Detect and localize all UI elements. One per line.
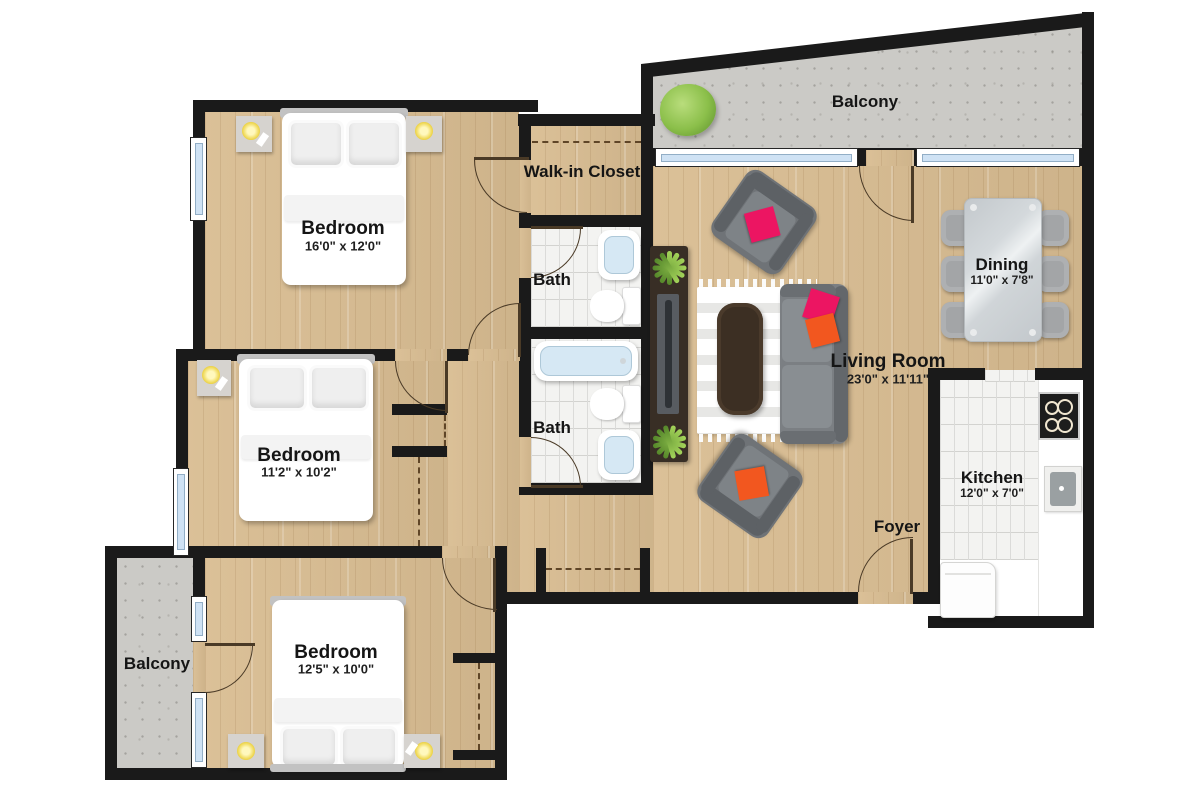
stove-burner bbox=[1057, 417, 1073, 433]
wall-kitchen-north-right bbox=[1035, 368, 1094, 380]
closet-rod-walk-in bbox=[532, 141, 641, 143]
room-label-dining: Dining bbox=[976, 255, 1029, 275]
table-corner-dot bbox=[970, 204, 977, 211]
kitchen-entry-tile bbox=[985, 370, 1035, 382]
room-dims-living-room: 23'0" x 11'11" bbox=[847, 373, 929, 388]
coffee-table bbox=[717, 303, 763, 415]
bathtub-faucet bbox=[620, 358, 626, 364]
room-label-foyer: Foyer bbox=[874, 517, 920, 537]
lamp bbox=[242, 122, 260, 140]
sofa-armrest bbox=[780, 431, 836, 444]
door-gap-balcony-top bbox=[866, 150, 914, 166]
bathtub bbox=[534, 341, 638, 381]
room-dims-dining: 11'0" x 7'8" bbox=[970, 274, 1033, 288]
door-gap-balcony-bottom bbox=[193, 642, 205, 692]
bath-upper-toilet-bowl bbox=[590, 290, 624, 322]
nightstand bbox=[228, 734, 264, 768]
lamp bbox=[415, 122, 433, 140]
window-pane bbox=[195, 698, 203, 762]
table-corner-dot bbox=[1029, 204, 1036, 211]
bed-bottom-headboard bbox=[270, 764, 406, 772]
window-bedroom-middle bbox=[173, 468, 189, 556]
wall-east bbox=[1082, 12, 1094, 628]
window-pane bbox=[177, 474, 185, 550]
nightstand bbox=[236, 116, 272, 152]
bath-lower-toilet-tank bbox=[622, 385, 641, 423]
bed-top bbox=[282, 113, 406, 285]
window-living-balcony-1 bbox=[655, 148, 858, 167]
bath-upper-toilet-tank bbox=[622, 287, 641, 325]
door-gap-entry bbox=[858, 592, 913, 604]
tv bbox=[657, 294, 679, 414]
room-dims-kitchen: 12'0" x 7'0" bbox=[960, 487, 1024, 501]
bath-upper-sink bbox=[598, 230, 640, 280]
window-balcony-bottom-2 bbox=[191, 692, 207, 768]
room-label-bedroom-top: Bedroom bbox=[301, 218, 384, 240]
bed-pillow bbox=[346, 120, 402, 168]
closet-door-hall bbox=[546, 568, 640, 570]
stove-burner bbox=[1057, 399, 1073, 415]
tv-screen bbox=[665, 300, 672, 408]
window-pane bbox=[195, 143, 203, 215]
door-leaf-bath-upper bbox=[531, 226, 583, 229]
room-label-balcony-top: Balcony bbox=[832, 92, 898, 112]
door-leaf-bath-lower bbox=[531, 485, 583, 488]
door-gap-bedroom-middle bbox=[395, 349, 447, 361]
wall-kitchen-west bbox=[928, 368, 940, 596]
bath-lower-toilet-bowl bbox=[590, 388, 624, 420]
room-label-living-room: Living Room bbox=[830, 351, 945, 373]
plant-icon bbox=[649, 248, 689, 288]
kitchen-sink-faucet bbox=[1059, 486, 1064, 491]
bathtub-basin bbox=[540, 346, 632, 376]
wall-balcony-bottom-west bbox=[105, 546, 117, 780]
lamp bbox=[237, 742, 255, 760]
room-dims-bedroom-top: 16'0" x 12'0" bbox=[305, 240, 381, 255]
kitchen-sink bbox=[1044, 466, 1082, 512]
room-label-bath-upper: Bath bbox=[533, 270, 571, 290]
bed-pillow bbox=[288, 120, 344, 168]
bed-bottom bbox=[272, 600, 404, 768]
table-corner-dot bbox=[970, 329, 977, 336]
window-pane bbox=[195, 602, 203, 636]
sink-basin bbox=[604, 436, 634, 474]
bed-pillow bbox=[309, 365, 369, 411]
closet-door-linen bbox=[444, 415, 446, 446]
wall-hall-closet-stub-right bbox=[640, 548, 650, 592]
wall-hall-closet-stub-left bbox=[536, 548, 546, 592]
stove bbox=[1038, 392, 1080, 440]
door-gap-bath-lower bbox=[519, 437, 531, 487]
table-corner-dot bbox=[1029, 329, 1036, 336]
wall-bedroom-bottom-closet-stub-bottom bbox=[453, 750, 497, 760]
door-leaf-balcony-top bbox=[911, 166, 914, 223]
door-leaf-walk-in-closet bbox=[474, 157, 529, 160]
room-label-bath-lower: Bath bbox=[533, 418, 571, 438]
door-leaf-bedroom-middle bbox=[445, 361, 448, 413]
room-dims-bedroom-middle: 11'2" x 10'2" bbox=[261, 466, 337, 481]
bath-lower-sink bbox=[598, 430, 640, 480]
nightstand bbox=[404, 734, 440, 768]
plant-icon bbox=[649, 422, 689, 462]
sofa-cushion bbox=[782, 365, 832, 428]
window-pane bbox=[661, 154, 852, 162]
nightstand bbox=[406, 116, 442, 152]
door-leaf-entry bbox=[910, 539, 913, 594]
window-pane bbox=[922, 154, 1074, 162]
bed-pillow bbox=[280, 726, 338, 768]
bed-middle bbox=[239, 359, 373, 521]
room-label-balcony-bottom: Balcony bbox=[124, 654, 190, 674]
sink-basin bbox=[604, 236, 634, 274]
door-leaf-balcony-bottom bbox=[205, 643, 255, 646]
wall-bedroom-bottom-closet-stub-top bbox=[453, 653, 497, 663]
window-bedroom-top bbox=[190, 137, 207, 221]
bed-blanket-fold bbox=[274, 698, 402, 722]
closet-door-bedroom-middle bbox=[418, 457, 420, 546]
closet-door-bedroom-bottom bbox=[478, 663, 480, 750]
room-dims-bedroom-bottom: 12'5" x 10'0" bbox=[298, 663, 374, 678]
throw-pillow-orange bbox=[734, 466, 769, 501]
wall-baths-divider bbox=[519, 327, 653, 339]
door-gap-bedroom-bottom bbox=[442, 546, 495, 558]
door-leaf-bedroom-top bbox=[518, 303, 521, 357]
bed-pillow bbox=[340, 726, 398, 768]
window-living-balcony-2 bbox=[916, 148, 1080, 167]
door-gap-bath-upper bbox=[519, 228, 531, 278]
window-balcony-bottom-1 bbox=[191, 596, 207, 642]
fridge-handle bbox=[945, 573, 991, 575]
room-label-kitchen: Kitchen bbox=[961, 468, 1023, 488]
nightstand bbox=[197, 360, 231, 396]
bed-pillow bbox=[247, 365, 307, 411]
fridge bbox=[940, 562, 996, 618]
wall-closet-north bbox=[518, 114, 655, 126]
wall-bedroom-middle-south bbox=[105, 546, 442, 558]
room-label-walk-in-closet: Walk-in Closet bbox=[524, 162, 641, 182]
door-leaf-bedroom-bottom bbox=[493, 558, 496, 612]
wall-linen-closet-stub-bottom bbox=[392, 446, 447, 457]
floor-plan: Bedroom 16'0" x 12'0" Bedroom 11'2" x 10… bbox=[0, 0, 1200, 805]
